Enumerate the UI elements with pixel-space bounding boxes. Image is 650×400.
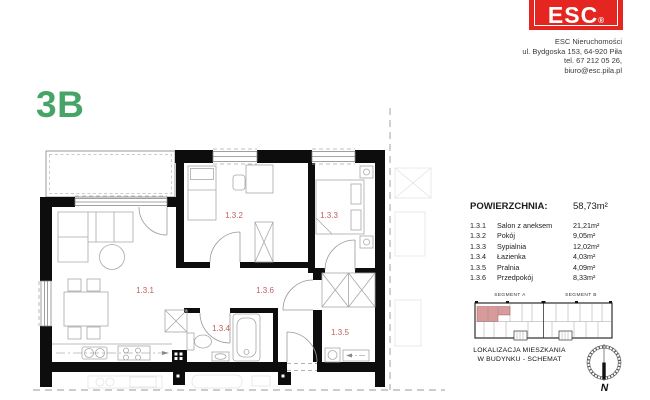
- corner-sofa: [58, 212, 133, 262]
- segment-a-label: SEGMENT A: [494, 292, 526, 298]
- chair: [68, 327, 81, 339]
- logo-registered-mark: ®: [598, 16, 604, 25]
- caption-line-2: W BUDYNKU - SCHEMAT: [452, 356, 587, 365]
- table-row: 1.3.2 Pokój 9,05m²: [470, 231, 628, 241]
- table-row: 1.3.6 Przedpokój 8,33m²: [470, 273, 628, 283]
- room-area: 4,03m²: [573, 252, 628, 262]
- toilet-tank: [187, 333, 194, 350]
- room-name: Przedpokój: [497, 273, 573, 283]
- nightstand: [360, 236, 373, 248]
- company-email: biuro@esc.pila.pl: [522, 66, 622, 76]
- room-name: Salon z aneksem: [497, 221, 573, 231]
- compass-north-label: N: [600, 382, 610, 394]
- room-name: Pokój: [497, 231, 573, 241]
- company-street: ul. Bydgoska 153, 64-920 Piła: [522, 47, 622, 57]
- room-number: 1.3.5: [470, 263, 497, 273]
- table-row: 1.3.5 Pralnia 4,09m²: [470, 263, 628, 273]
- dining-table: [64, 292, 108, 326]
- room-number: 1.3.2: [470, 231, 497, 241]
- location-caption: LOKALIZACJA MIESZKANIA W BUDYNKU - SCHEM…: [452, 347, 587, 365]
- unit-code: 3B: [36, 84, 84, 126]
- segment-b-label: SEGMENT B: [565, 292, 597, 298]
- desk: [246, 165, 273, 193]
- logo-text: ESC®: [529, 1, 623, 35]
- room-label-pokoj: 1.3.2: [225, 211, 243, 220]
- table-row: 1.3.1 Salon z aneksem 21,21m²: [470, 221, 628, 231]
- coffee-table: [100, 245, 125, 270]
- room-area: 4,09m²: [573, 263, 628, 273]
- room-number: 1.3.3: [470, 242, 497, 252]
- desk-chair: [233, 175, 245, 190]
- room-number: 1.3.6: [470, 273, 497, 283]
- total-area-value: 58,73m²: [573, 201, 608, 212]
- esc-logo: ESC®: [529, 0, 623, 30]
- room-number: 1.3.4: [470, 252, 497, 262]
- balcony: [46, 151, 175, 197]
- single-bed: [188, 166, 216, 220]
- company-name: ESC Nieruchomości: [522, 37, 622, 47]
- chair: [87, 279, 100, 291]
- building-schematic: SEGMENT A SEGMENT B: [475, 292, 612, 340]
- company-phone: tel. 67 212 05 26,: [522, 56, 622, 66]
- windows: [39, 149, 355, 326]
- room-area: 21,21m²: [573, 221, 628, 231]
- double-bed: [316, 180, 364, 234]
- room-number: 1.3.1: [470, 221, 497, 231]
- compass-icon: N: [587, 344, 621, 394]
- company-info: ESC Nieruchomości ul. Bydgoska 153, 64-9…: [522, 37, 622, 75]
- area-table-header: POWIERZCHNIA: 58,73m²: [470, 201, 628, 212]
- table-row: 1.3.4 Łazienka 4,03m²: [470, 252, 628, 262]
- door-swings: [139, 207, 355, 371]
- toilet-bowl: [195, 335, 212, 348]
- room-label-przedpokoj: 1.3.6: [256, 286, 274, 295]
- room-name: Łazienka: [497, 252, 573, 262]
- room-label-lazienka: 1.3.4: [212, 324, 230, 333]
- logo-brand: ESC: [548, 2, 598, 28]
- table-row: 1.3.3 Sypialnia 12,02m²: [470, 242, 628, 252]
- floor-plan-page: 1.3.1 1.3.2 1.3.3 1.3.4 1.3.5 1.3.6 SEGM…: [0, 0, 650, 400]
- chair: [68, 279, 81, 291]
- walls: [40, 150, 385, 387]
- room-area: 12,02m²: [573, 242, 628, 252]
- room-name: Sypialnia: [497, 242, 573, 252]
- room-area: 9,05m²: [573, 231, 628, 241]
- room-label-salon: 1.3.1: [136, 286, 154, 295]
- chair: [87, 327, 100, 339]
- area-header-label: POWIERZCHNIA:: [470, 201, 573, 212]
- room-area: 8,33m²: [573, 273, 628, 283]
- caption-line-1: LOKALIZACJA MIESZKANIA: [452, 347, 587, 356]
- room-label-pralnia: 1.3.5: [331, 328, 349, 337]
- area-table: POWIERZCHNIA: 58,73m² 1.3.1 Salon z anek…: [470, 201, 628, 283]
- nightstand: [360, 166, 373, 178]
- room-name: Pralnia: [497, 263, 573, 273]
- room-label-sypialnia: 1.3.3: [320, 211, 338, 220]
